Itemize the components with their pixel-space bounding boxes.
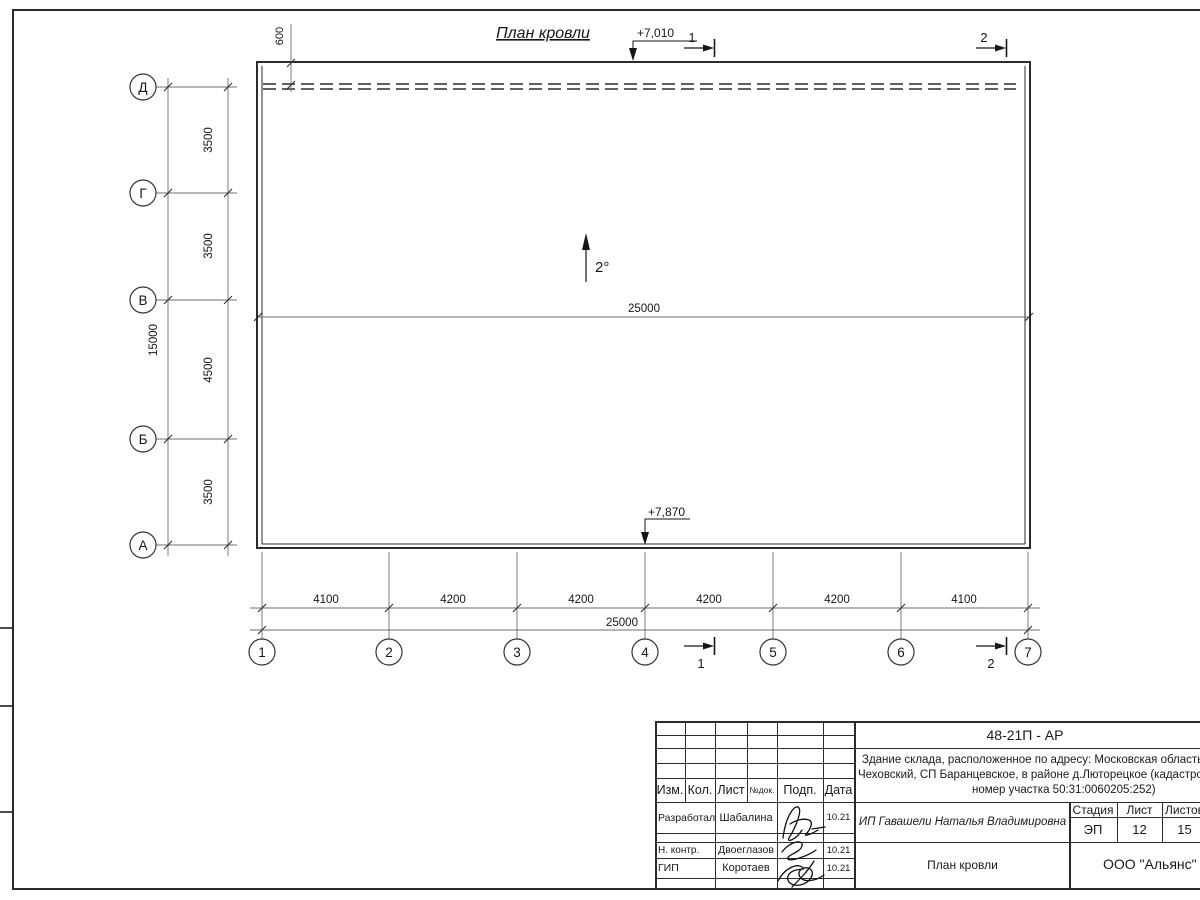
svg-text:3500: 3500 [203,127,215,153]
svg-text:15000: 15000 [148,324,160,356]
col-axis-labels: 1 2 3 4 5 6 7 [258,645,1032,660]
elevation-marker-top: +7,010 [629,26,697,61]
row-dim-labels: 3500 3500 4500 3500 15000 [148,127,215,505]
tb-name-developer: Шабалина [715,802,777,833]
tb-sheets-value: 15 [1162,817,1200,842]
svg-text:4500: 4500 [203,357,215,383]
tb-header-list: Лист [715,778,747,802]
roof-plan-canvas: План кровли 600 25000 2° +7,010 [0,0,1200,720]
svg-text:4200: 4200 [824,594,850,606]
elevation-bottom-label: +7,870 [648,505,685,519]
tb-sheets-label: Листов [1162,802,1200,817]
tb-sheet-value: 12 [1117,817,1162,842]
tb-role-gip: ГИП [655,858,715,878]
svg-text:4200: 4200 [696,594,722,606]
row-axis-labels: Д Г В Б А [138,80,147,553]
svg-text:1: 1 [697,656,704,671]
tb-role-ncontrol: Н. контр. [655,842,715,858]
row-axis-ticks [164,83,232,549]
section-marker-1-top: 1 [684,30,715,57]
tb-description-line-3: номер участка 50:31:0060205:252) [972,784,1156,796]
tb-role-developer: Разработал [655,802,715,833]
tb-stage-value: ЭП [1069,817,1117,842]
svg-text:7: 7 [1024,645,1032,660]
svg-text:5: 5 [769,645,777,660]
tb-header-ndok: №док. [747,778,777,802]
drawing-sheet: { "drawing": { "title": "План кровли", "… [0,0,1200,900]
tb-sheet-label: Лист [1117,802,1162,817]
row-axis-lines [156,78,237,556]
tb-sheet-title: План кровли [856,842,1069,888]
col-axis-lines [250,552,1040,639]
sheet-frame-bottom [12,888,1200,890]
svg-text:3500: 3500 [203,233,215,259]
svg-text:2: 2 [987,656,994,671]
tb-client: ИП Гавашели Наталья Владимировна [856,802,1069,842]
svg-text:1: 1 [688,30,695,45]
svg-text:4200: 4200 [440,594,466,606]
dim-internal-total: 25000 [628,303,660,315]
svg-text:6: 6 [897,645,905,660]
svg-text:1: 1 [258,645,266,660]
margin-mark-3 [0,811,12,813]
drawing-title: План кровли [496,25,590,42]
svg-text:В: В [138,293,147,308]
svg-text:4: 4 [641,645,649,660]
tb-description-line-1: Здание склада, расположенное по адресу: … [862,754,1200,766]
svg-text:4200: 4200 [568,594,594,606]
dim-parapet-label: 600 [274,27,286,45]
row-axis-bubbles [130,74,156,558]
tb-name-ncontrol: Двоеглазов [715,842,777,858]
tb-header-izm: Изм. [655,778,685,802]
svg-text:А: А [138,538,147,553]
section-marker-1-bottom: 1 [684,637,715,671]
tb-doc-code: 48-21П - АР [920,723,1130,747]
svg-text:Г: Г [139,186,147,201]
section-marker-2-top: 2 [976,30,1007,57]
tb-header-podp: Подп. [777,778,823,802]
tb-header-kol: Кол. [685,778,715,802]
elevation-top-label: +7,010 [637,26,674,40]
svg-text:2: 2 [385,645,393,660]
svg-text:3: 3 [513,645,521,660]
svg-text:4100: 4100 [313,594,339,606]
signature-ncontrol-gip [772,837,830,889]
tb-name-gip: Коротаев [715,858,777,878]
tb-company: ООО "Альянс" [1103,856,1197,872]
svg-text:Д: Д [138,80,147,95]
tb-description-line-2: Чеховский, СП Баранцевское, в районе д.Л… [858,769,1200,781]
svg-text:2: 2 [980,30,987,45]
section-marker-2-bottom: 2 [976,637,1007,671]
slope-label: 2° [595,259,609,276]
svg-text:Б: Б [139,432,148,447]
svg-text:25000: 25000 [606,617,638,629]
svg-text:4100: 4100 [951,594,977,606]
svg-text:3500: 3500 [203,479,215,505]
tb-stage-label: Стадия [1069,802,1117,817]
tb-header-data: Дата [823,778,854,802]
tb-line [655,748,1200,749]
